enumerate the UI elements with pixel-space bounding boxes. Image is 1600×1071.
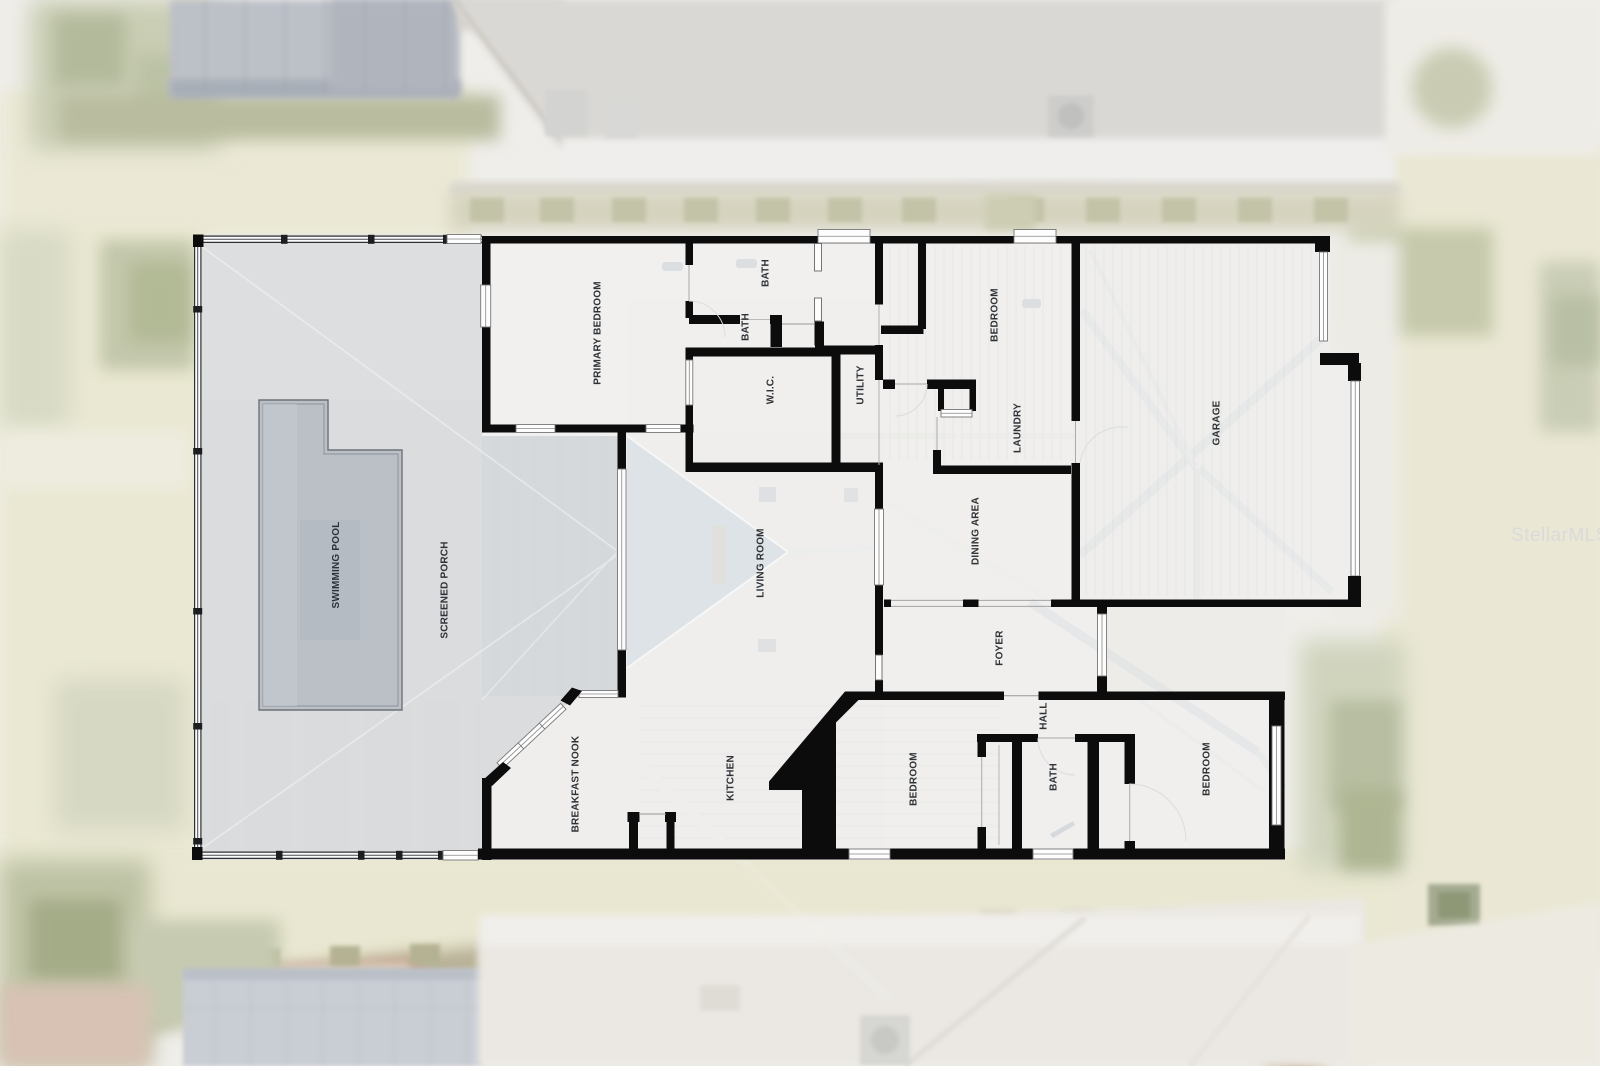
svg-text:BEDROOM: BEDROOM [1202,742,1213,796]
svg-text:SWIMMING POOL: SWIMMING POOL [331,521,342,608]
svg-text:PRIMARY BEDROOM: PRIMARY BEDROOM [593,281,604,385]
svg-text:BATH: BATH [761,259,772,287]
svg-text:BATH: BATH [741,313,752,341]
svg-text:UTILITY: UTILITY [856,365,867,404]
svg-text:LIVING ROOM: LIVING ROOM [756,528,767,597]
svg-text:StellarMLS: StellarMLS [1511,525,1600,546]
svg-text:W.I.C.: W.I.C. [766,376,777,404]
svg-text:BEDROOM: BEDROOM [909,752,920,806]
svg-text:SCREENED PORCH: SCREENED PORCH [440,541,451,638]
svg-text:HALL: HALL [1039,702,1050,729]
svg-text:BREAKFAST NOOK: BREAKFAST NOOK [571,735,582,832]
svg-text:LAUNDRY: LAUNDRY [1013,403,1024,453]
svg-text:GARAGE: GARAGE [1212,400,1223,445]
svg-text:KITCHEN: KITCHEN [726,755,737,801]
svg-text:FOYER: FOYER [995,630,1006,666]
svg-text:BEDROOM: BEDROOM [990,288,1001,342]
svg-text:DINING AREA: DINING AREA [971,497,982,565]
svg-text:BATH: BATH [1049,763,1060,791]
